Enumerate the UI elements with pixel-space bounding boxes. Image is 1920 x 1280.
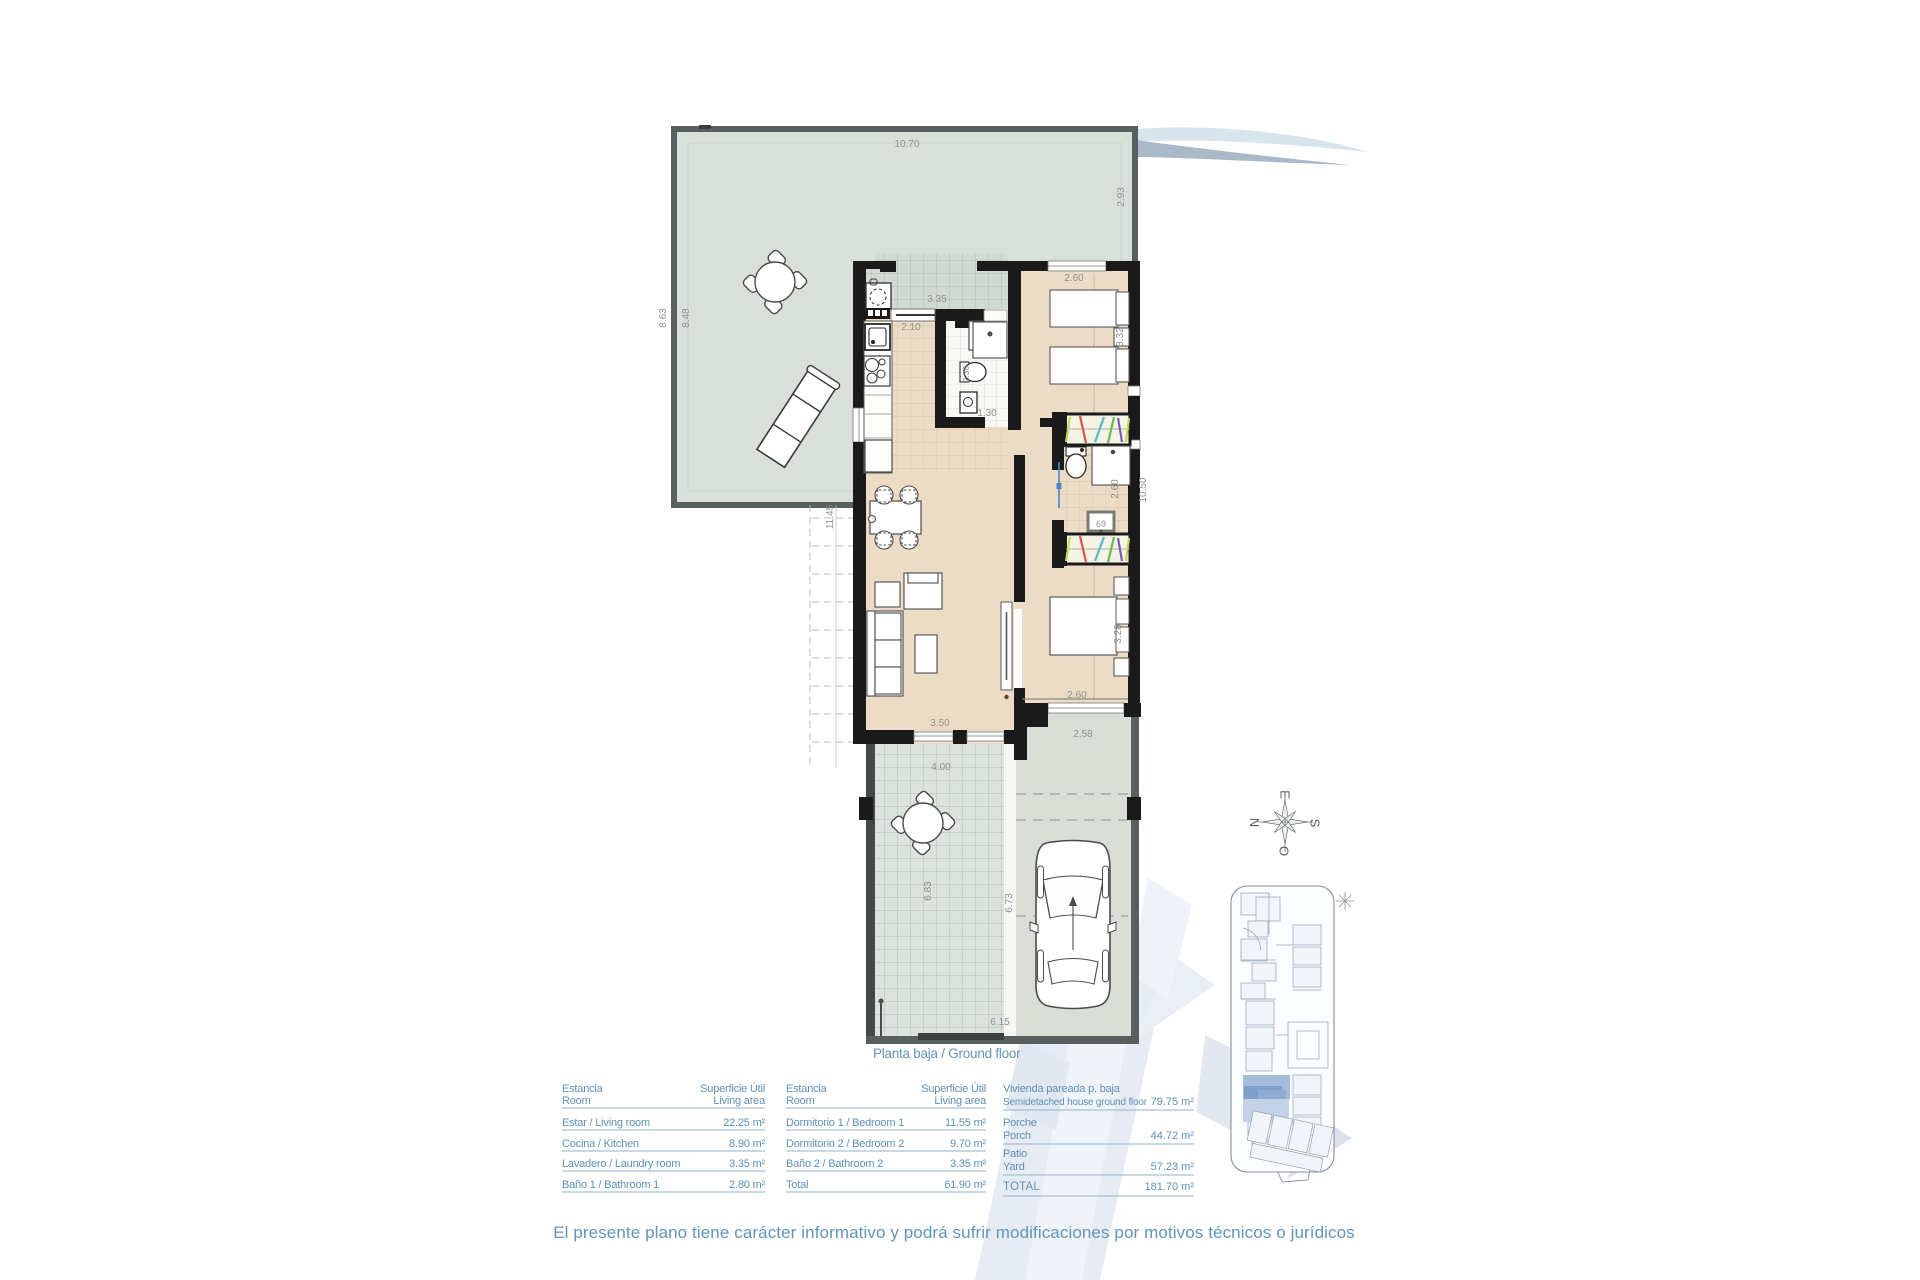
svg-text:Dormitorio 2 / Bedroom 2: Dormitorio 2 / Bedroom 2 [786,1138,904,1150]
svg-text:10.70: 10.70 [894,139,919,150]
svg-text:Estar / Living room: Estar / Living room [562,1117,650,1129]
svg-text:8.90 m²: 8.90 m² [729,1138,765,1150]
svg-text:Dormitorio 1 / Bedroom 1: Dormitorio 1 / Bedroom 1 [786,1117,904,1129]
svg-text:8.48: 8.48 [681,308,692,328]
svg-text:Superficie Útil: Superficie Útil [921,1082,986,1095]
svg-text:2.80 m²: 2.80 m² [729,1179,765,1191]
svg-text:79.75 m²: 79.75 m² [1151,1096,1195,1108]
svg-text:10.50: 10.50 [1138,477,1149,502]
svg-text:Lavadero / Laundry room: Lavadero / Laundry room [562,1158,680,1170]
svg-text:44.72 m²: 44.72 m² [1151,1130,1195,1142]
svg-text:2.60: 2.60 [1110,479,1121,499]
svg-text:3.35 m²: 3.35 m² [950,1158,986,1170]
svg-text:3.35: 3.35 [927,294,947,305]
svg-text:3.28: 3.28 [1113,624,1124,644]
svg-text:Porche: Porche [1003,1117,1037,1129]
svg-text:3.32: 3.32 [1115,327,1126,347]
svg-text:2.30: 2.30 [961,365,971,382]
svg-text:2.58: 2.58 [1073,729,1093,740]
svg-text:Vivienda pareada p. baja: Vivienda pareada p. baja [1003,1083,1121,1095]
svg-text:N: N [1247,818,1262,827]
svg-text:61.90 m²: 61.90 m² [944,1179,986,1191]
svg-text:11.45: 11.45 [825,504,836,529]
svg-text:9.70 m²: 9.70 m² [950,1138,986,1150]
svg-text:Planta baja / Ground floor: Planta baja / Ground floor [873,1046,1021,1061]
svg-text:Baño 2 / Bathroom 2: Baño 2 / Bathroom 2 [786,1158,883,1170]
svg-text:4.00: 4.00 [931,762,951,773]
svg-text:Baño 1 / Bathroom 1: Baño 1 / Bathroom 1 [562,1179,659,1191]
svg-text:Superficie Útil: Superficie Útil [700,1082,765,1095]
svg-text:Patio: Patio [1003,1148,1027,1160]
svg-text:1.30: 1.30 [977,408,997,419]
svg-text:3.35 m²: 3.35 m² [729,1158,765,1170]
svg-text:6.83: 6.83 [923,881,934,901]
svg-text:Porch: Porch [1003,1130,1031,1142]
svg-text:El presente plano tiene caráct: El presente plano tiene carácter informa… [553,1223,1355,1242]
svg-text:Yard: Yard [1003,1161,1025,1173]
svg-text:Cocina / Kitchen: Cocina / Kitchen [562,1138,639,1150]
svg-text:2.93: 2.93 [1116,187,1127,207]
svg-text:57.23 m²: 57.23 m² [1151,1161,1195,1173]
svg-text:Semidetached house ground floo: Semidetached house ground floor [1003,1097,1148,1108]
svg-text:2.60: 2.60 [1067,690,1087,701]
svg-text:O: O [1277,846,1292,856]
svg-text:Total: Total [786,1179,808,1191]
svg-text:69: 69 [1096,519,1106,529]
svg-text:Living area: Living area [713,1095,766,1107]
svg-text:Estancia: Estancia [562,1083,604,1095]
svg-text:Estancia: Estancia [786,1083,828,1095]
svg-text:6.15: 6.15 [990,1017,1010,1028]
svg-text:Room: Room [562,1095,591,1107]
svg-text:Room: Room [786,1095,815,1107]
svg-text:22.25 m²: 22.25 m² [723,1117,765,1129]
svg-text:2.60: 2.60 [1064,273,1084,284]
svg-text:6.73: 6.73 [1004,893,1015,913]
svg-text:11.55 m²: 11.55 m² [945,1117,987,1129]
svg-text:E: E [1278,790,1293,799]
svg-text:181.70 m²: 181.70 m² [1144,1181,1194,1193]
svg-text:2.10: 2.10 [901,322,921,333]
svg-text:Living area: Living area [934,1095,987,1107]
svg-text:8.63: 8.63 [658,308,669,328]
svg-text:S: S [1308,819,1323,828]
svg-text:TOTAL: TOTAL [1003,1181,1040,1193]
svg-text:3.50: 3.50 [930,718,950,729]
